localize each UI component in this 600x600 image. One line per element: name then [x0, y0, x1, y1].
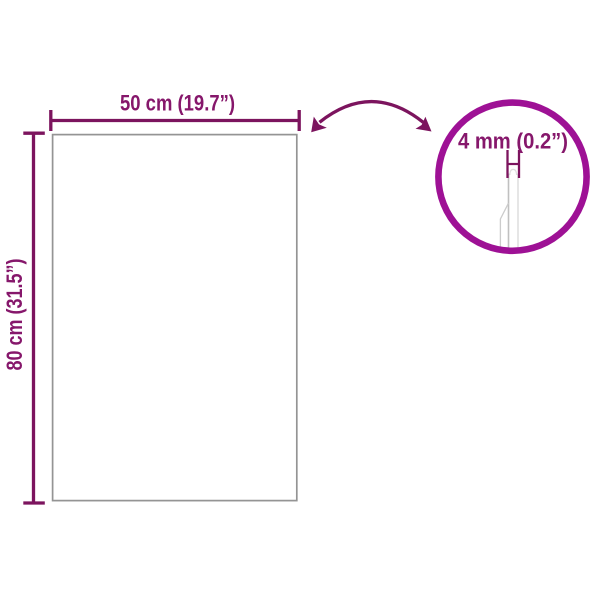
- svg-text:4 mm (0.2”): 4 mm (0.2”): [458, 129, 568, 154]
- svg-text:50 cm (19.7”): 50 cm (19.7”): [120, 91, 235, 116]
- svg-text:80 cm (31.5”): 80 cm (31.5”): [2, 259, 27, 371]
